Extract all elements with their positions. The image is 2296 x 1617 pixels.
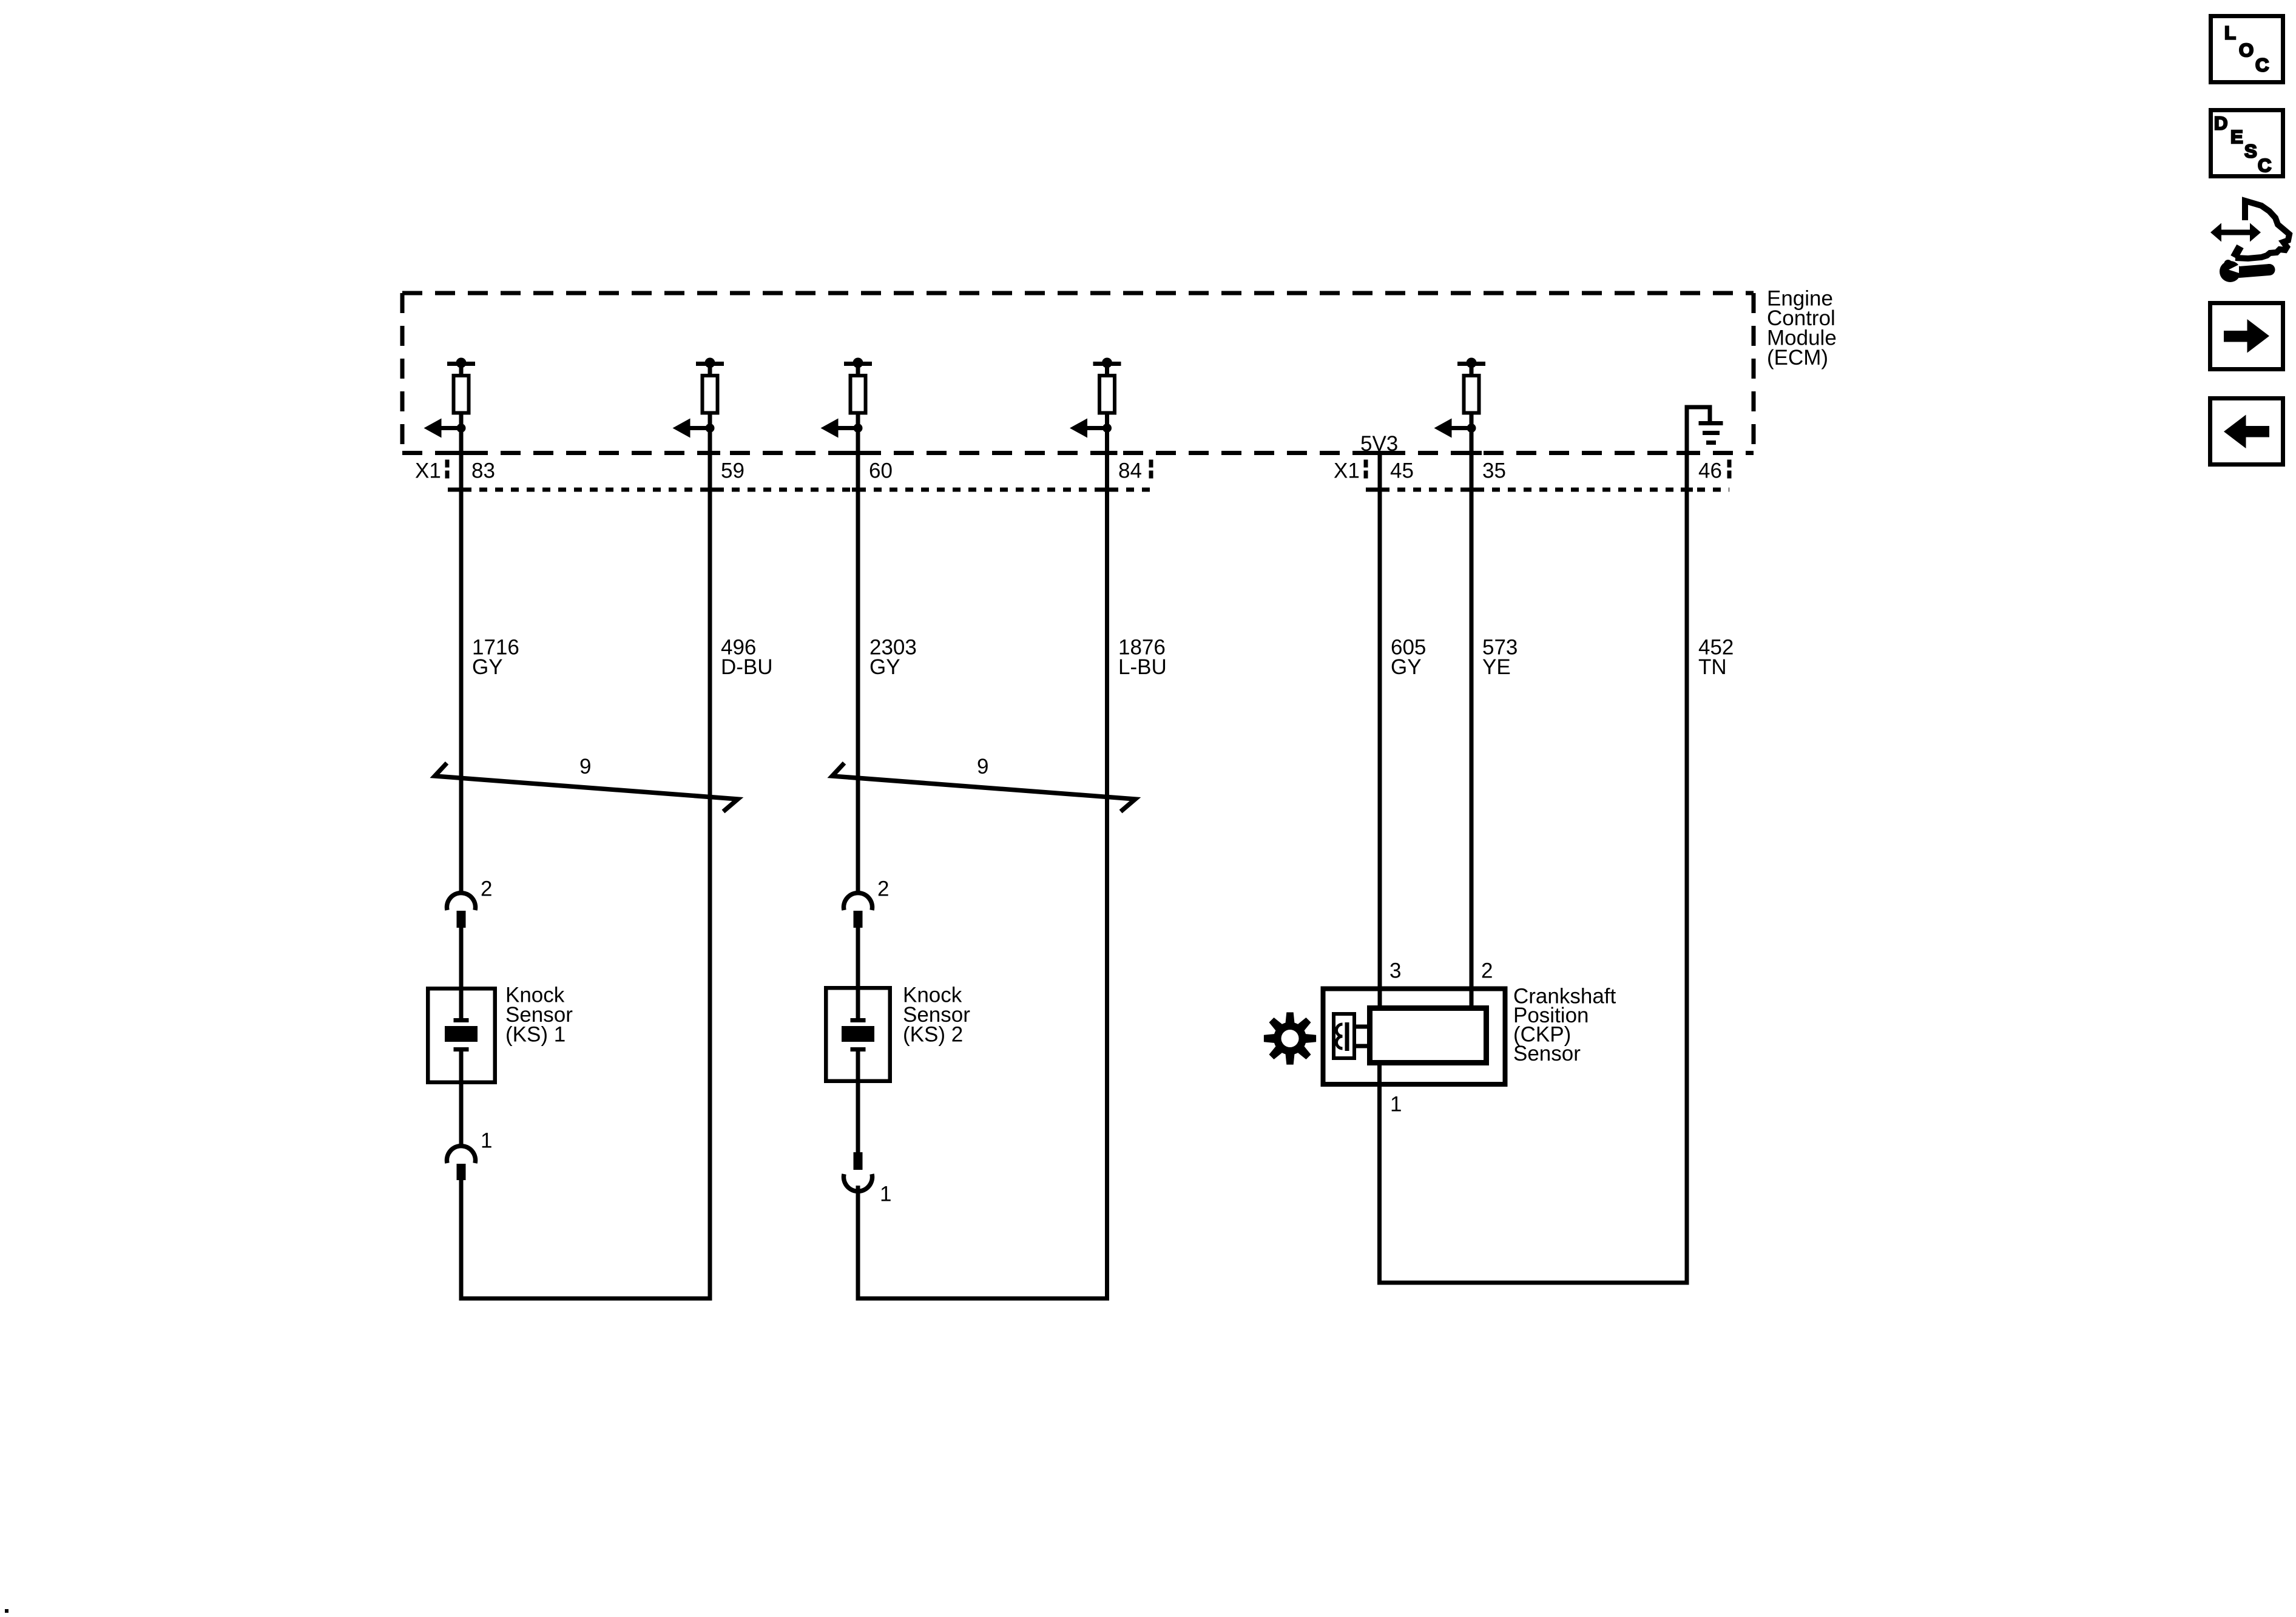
svg-text:46: 46 [1698,459,1722,483]
svg-text:Sensor: Sensor [1513,1042,1581,1065]
svg-text:O: O [2239,39,2254,61]
svg-text:1: 1 [1390,1093,1402,1116]
svg-text:35: 35 [1482,459,1506,483]
svg-text:S: S [2244,141,2257,162]
svg-text:X1: X1 [1334,459,1360,483]
svg-text:L-BU: L-BU [1118,655,1167,679]
svg-text:2: 2 [481,877,492,901]
svg-text:(KS) 1: (KS) 1 [505,1023,566,1047]
svg-text:1: 1 [880,1183,891,1206]
svg-text:TN: TN [1698,655,1727,679]
svg-text:3: 3 [1389,959,1401,983]
svg-text:5V3: 5V3 [1360,432,1398,456]
svg-text:C: C [2255,55,2269,76]
svg-text:C: C [2258,155,2271,176]
svg-text:2: 2 [877,877,889,901]
svg-text:45: 45 [1390,459,1414,483]
svg-text:D: D [2214,113,2227,134]
svg-text:(ECM): (ECM) [1767,346,1828,370]
svg-text:L: L [2224,22,2236,44]
svg-text:83: 83 [471,459,495,483]
svg-text:1: 1 [481,1129,492,1153]
svg-text:YE: YE [1482,655,1511,679]
svg-text:(KS) 2: (KS) 2 [903,1023,963,1047]
svg-text:9: 9 [579,755,591,778]
svg-text:2: 2 [1481,959,1493,983]
svg-text:D-BU: D-BU [721,655,773,679]
svg-text:60: 60 [869,459,893,483]
svg-text:GY: GY [1391,655,1422,679]
svg-text:X1: X1 [415,459,441,483]
svg-text:E: E [2230,126,2243,147]
svg-text:9: 9 [977,755,988,778]
svg-text:84: 84 [1118,459,1142,483]
svg-text:59: 59 [721,459,745,483]
svg-text:GY: GY [869,655,900,679]
svg-text:GY: GY [472,655,503,679]
